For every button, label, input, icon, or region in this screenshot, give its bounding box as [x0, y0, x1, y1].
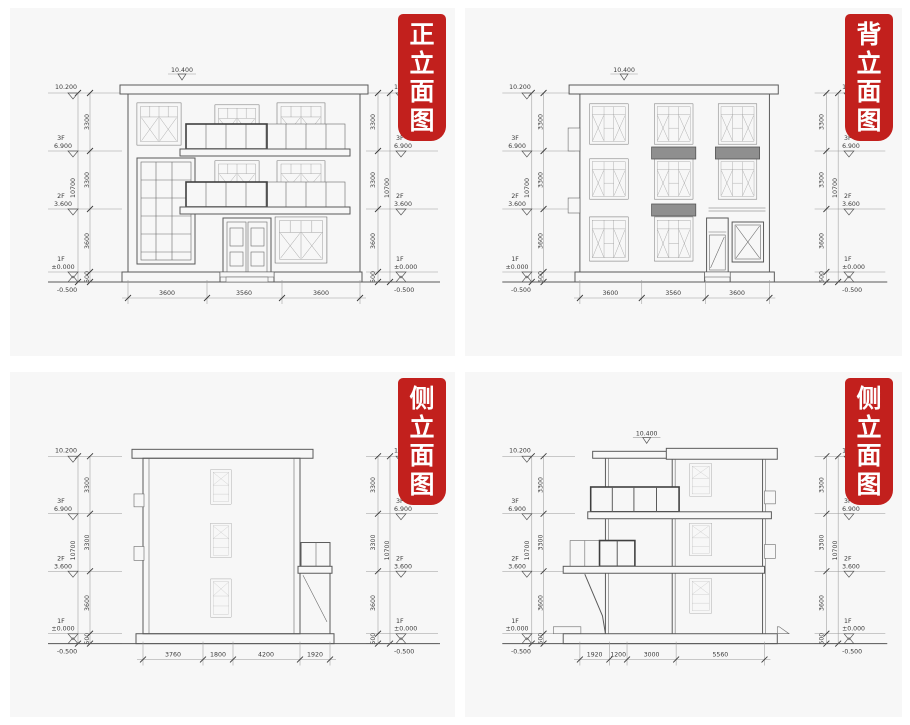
bottom-dim: 3760 — [165, 652, 181, 659]
title-stamp-side-right: 侧 立 面 图 — [845, 378, 893, 505]
elevation-sheet: { "page": { "background": "#ffffff", "pa… — [0, 0, 910, 725]
bottom-dim: 3000 — [644, 652, 660, 659]
bottom-dim: 3560 — [665, 290, 681, 297]
awning-3f-center — [652, 147, 696, 159]
roof-level-mark: 10.400 — [610, 67, 637, 80]
awning-3f-right — [715, 147, 759, 159]
title-stamp-side-left: 侧 立 面 图 — [398, 378, 446, 505]
building — [48, 85, 440, 282]
title-stamp-back: 背 立 面 图 — [845, 14, 893, 141]
stamp-character: 图 — [409, 108, 434, 133]
stamp-character: 图 — [856, 108, 881, 133]
entrance-door — [223, 218, 271, 272]
roof-level-mark: 10.400 — [168, 67, 196, 80]
plinth — [553, 627, 789, 644]
bottom-dim: 3560 — [236, 290, 252, 297]
bottom-dim: 1200 — [610, 652, 626, 659]
stamp-character: 侧 — [409, 386, 434, 411]
stamp-character: 面 — [856, 443, 881, 468]
balcony-2f — [563, 541, 764, 574]
stamp-character: 立 — [856, 51, 881, 76]
bottom-dimensions: 1920 1200 3000 5560 — [574, 642, 770, 666]
bottom-dimensions: 3600 3560 3600 — [574, 280, 775, 304]
plinth — [122, 272, 362, 282]
stamp-character: 面 — [409, 443, 434, 468]
plinth — [575, 272, 774, 282]
bottom-dimensions: 3760 1800 4200 1920 — [137, 642, 336, 666]
roof-mark-value: 10.400 — [613, 67, 635, 74]
carport-brace — [585, 574, 606, 633]
side-elevation-left-drawing: 3760 1800 4200 1920 — [10, 372, 455, 717]
back-narrow-window — [732, 222, 763, 262]
back-door — [707, 218, 729, 272]
panel-front-elevation: 10.400 — [10, 8, 455, 356]
stamp-character: 立 — [409, 415, 434, 440]
panel-side-elevation-left: 3760 1800 4200 1920 侧 立 面 图 — [10, 372, 455, 717]
balcony-2f — [180, 182, 350, 214]
bottom-dim: 3600 — [313, 290, 329, 297]
bottom-dim: 1920 — [587, 652, 603, 659]
awning-2f-center — [652, 204, 696, 216]
stamp-character: 图 — [409, 472, 434, 497]
bottom-dim: 4200 — [258, 652, 274, 659]
bottom-dim: 5560 — [712, 652, 728, 659]
stamp-character: 图 — [856, 472, 881, 497]
roof-mark-value: 10.400 — [636, 430, 658, 437]
stamp-character: 立 — [409, 51, 434, 76]
roof-mark-value: 10.400 — [171, 67, 193, 74]
balcony-3f — [588, 487, 772, 519]
plinth — [136, 634, 334, 644]
roof-level-mark: 10.400 — [633, 430, 660, 443]
side-balcony — [298, 543, 332, 634]
title-stamp-front: 正 立 面 图 — [398, 14, 446, 141]
front-elevation-drawing: 10.400 — [10, 8, 455, 356]
stamp-character: 正 — [409, 22, 434, 47]
bottom-dim: 1920 — [307, 652, 323, 659]
building — [48, 449, 440, 643]
building — [502, 448, 887, 643]
stamp-character: 面 — [856, 79, 881, 104]
stamp-character: 背 — [856, 22, 881, 47]
stamp-character: 侧 — [856, 386, 881, 411]
bottom-dimensions: 3600 3560 3600 — [122, 280, 366, 304]
building — [502, 85, 887, 282]
balcony-3f — [180, 124, 350, 156]
panel-side-elevation-right: 10.400 — [465, 372, 902, 717]
back-elevation-drawing: 10.400 — [465, 8, 902, 356]
bottom-dim: 3600 — [159, 290, 175, 297]
bottom-dim: 3600 — [602, 290, 618, 297]
stamp-character: 面 — [409, 79, 434, 104]
bottom-dim: 3600 — [729, 290, 745, 297]
stamp-character: 立 — [856, 415, 881, 440]
bottom-dim: 1800 — [210, 652, 226, 659]
panel-back-elevation: 10.400 — [465, 8, 902, 356]
side-elevation-right-drawing: 10.400 — [465, 372, 902, 717]
